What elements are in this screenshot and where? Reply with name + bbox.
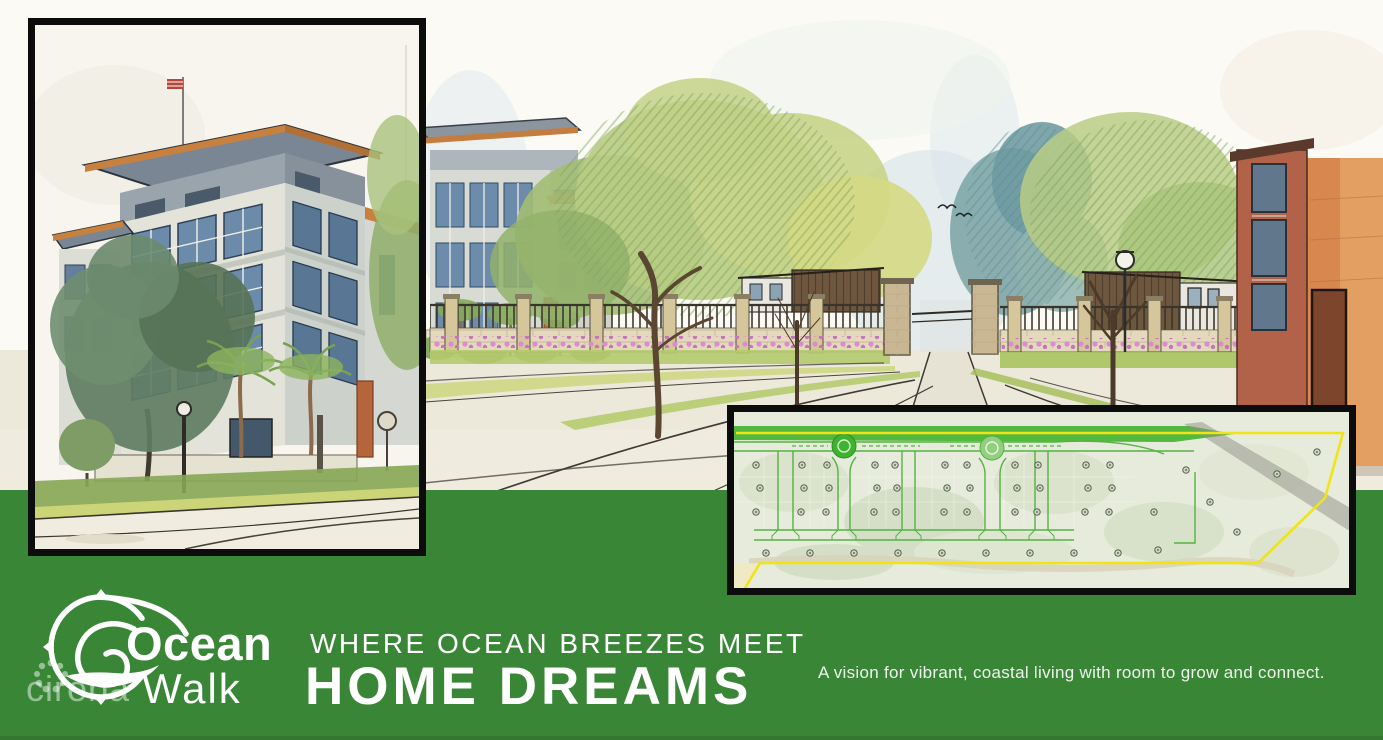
headline-small: WHERE OCEAN BREEZES MEET (310, 630, 806, 658)
base-window (230, 419, 272, 457)
building-inset-image (28, 18, 426, 556)
cireba-watermark-text: cireba (26, 671, 130, 707)
tagline: A vision for vibrant, coastal living wit… (818, 663, 1325, 683)
brand-word-ocean: Ocean (126, 620, 272, 667)
headline-large: HOME DREAMS (305, 660, 752, 713)
band-bottom-edge (0, 736, 1383, 740)
roundabout-1 (832, 434, 856, 458)
round-sign (378, 412, 396, 430)
brand-word-walk: Walk (142, 668, 242, 710)
siteplan-inset-image (727, 405, 1356, 595)
perimeter-fence-left (430, 294, 890, 364)
listing-flyer: Ocean Walk WHERE OCEAN BREEZES MEET HOME… (0, 0, 1383, 740)
roundabout-2 (980, 436, 1004, 460)
